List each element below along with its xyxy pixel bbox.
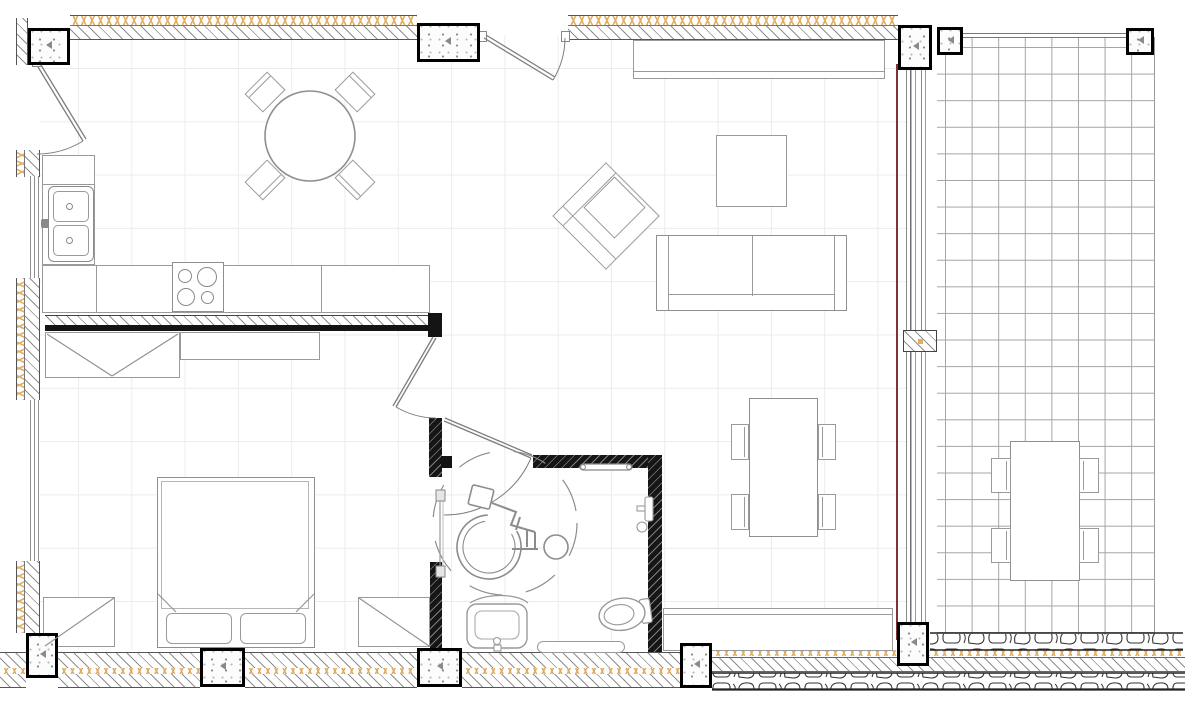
window-mullion (903, 330, 937, 352)
sofa (656, 235, 847, 311)
balcony-chair (991, 458, 1011, 493)
wall-hatch (245, 674, 417, 687)
burner (177, 288, 195, 306)
wall-hatch (24, 278, 39, 400)
chair-back (822, 497, 823, 527)
chair-back (822, 427, 823, 457)
insulation-band (17, 150, 24, 177)
kitchen-sink (48, 186, 94, 262)
balcony-chair (1079, 458, 1099, 493)
door-frame-stub (429, 418, 442, 477)
chair-back (744, 427, 745, 457)
wall-hatch (462, 653, 680, 668)
exterior-wall-left-corner (16, 18, 28, 65)
exterior-wall-bottom-3 (462, 652, 680, 688)
structural-column (898, 25, 932, 70)
sink-drain (66, 203, 73, 210)
bed (157, 477, 315, 648)
balcony-chair (1079, 528, 1099, 563)
structural-column (26, 633, 58, 678)
sideboard-edge (634, 71, 884, 72)
pillow (166, 613, 232, 644)
window-left-2 (30, 400, 39, 561)
faucet (41, 219, 49, 228)
structural-column (417, 648, 462, 687)
wall-hatch (24, 561, 39, 633)
floor-plan (0, 0, 1200, 703)
balcony-chair (991, 528, 1011, 563)
base-cabinet (180, 332, 320, 360)
insulation-band (17, 561, 24, 633)
wall-hatch (70, 25, 417, 39)
glazing-accent-line (896, 64, 898, 640)
exterior-wall-left-2 (16, 278, 40, 400)
window-wall-glazing (906, 62, 928, 642)
structural-column (680, 643, 712, 688)
wall-hatch (0, 653, 26, 668)
exterior-wall-top-left (70, 15, 417, 40)
wall-hatch (568, 25, 898, 39)
structural-column (200, 648, 245, 687)
wall-hatch (58, 653, 200, 668)
bathroom-wall-right (648, 455, 662, 652)
insulation-band (17, 278, 24, 400)
wardrobe (45, 332, 180, 378)
balcony-table (1010, 441, 1080, 581)
bath-mat (537, 641, 625, 653)
sofa-armrest (834, 236, 835, 310)
kitchen-counter-horizontal (42, 265, 430, 313)
dining-chair (731, 424, 749, 460)
burner (201, 291, 214, 304)
chair-back (1006, 461, 1007, 490)
mattress (161, 481, 309, 609)
sofa-armrest (668, 236, 669, 310)
wall-hatch (245, 653, 417, 668)
wall-hatch (24, 150, 39, 177)
insulation-band (70, 16, 417, 25)
door-jamb (561, 31, 570, 42)
exterior-wall-bottom-2 (245, 652, 417, 688)
dining-table (749, 398, 818, 537)
sink-basin (53, 191, 89, 222)
counter-division (321, 266, 322, 312)
dining-chair (818, 424, 836, 460)
wall-hatch (462, 674, 680, 687)
burner (178, 269, 192, 283)
burner (197, 267, 217, 287)
coffee-table (716, 135, 787, 207)
chair-back (1083, 531, 1084, 560)
exterior-wall-left-1 (16, 150, 40, 177)
interior-wall-kitchen-hatch (45, 315, 428, 325)
sink-basin (53, 225, 89, 256)
stone-masonry-band-upper (930, 633, 1183, 650)
balcony-parapet (963, 33, 1127, 38)
bathroom-wall-left (430, 562, 442, 652)
interior-wall-kitchen (45, 325, 428, 331)
exterior-wall-left-3 (16, 561, 40, 633)
dining-chair (731, 494, 749, 530)
counter-division (96, 266, 97, 312)
bench-edge (664, 614, 892, 615)
structural-column (28, 28, 70, 65)
pillow (240, 613, 306, 644)
exterior-wall-bottom-stub (0, 652, 26, 688)
structural-column (1126, 28, 1154, 55)
chair-back (1006, 531, 1007, 560)
cooktop (172, 262, 224, 312)
wall-hatch (712, 657, 1185, 672)
wall-end-cap (428, 313, 442, 337)
bathroom-wall-top (533, 455, 662, 468)
tv-sideboard (633, 40, 885, 79)
dining-chair (818, 494, 836, 530)
structural-column (897, 622, 929, 666)
sofa-seat-division (752, 236, 753, 296)
exterior-wall-top-right (568, 15, 898, 40)
counter-division (43, 184, 94, 185)
stone-masonry-band-lower (712, 673, 1185, 690)
exterior-wall-bottom-1 (58, 652, 200, 688)
window-left-1 (30, 176, 39, 278)
chair-back (1083, 461, 1084, 490)
door-frame-stub-foot (441, 456, 452, 468)
mullion-mark (918, 339, 923, 344)
wall-hatch (58, 674, 200, 687)
structural-column (417, 23, 480, 62)
chair-back (744, 497, 745, 527)
insulation-band (568, 16, 898, 25)
sink-drain (66, 237, 73, 244)
structural-column (937, 27, 963, 55)
wall-hatch (0, 674, 26, 687)
nightstand (358, 597, 430, 647)
